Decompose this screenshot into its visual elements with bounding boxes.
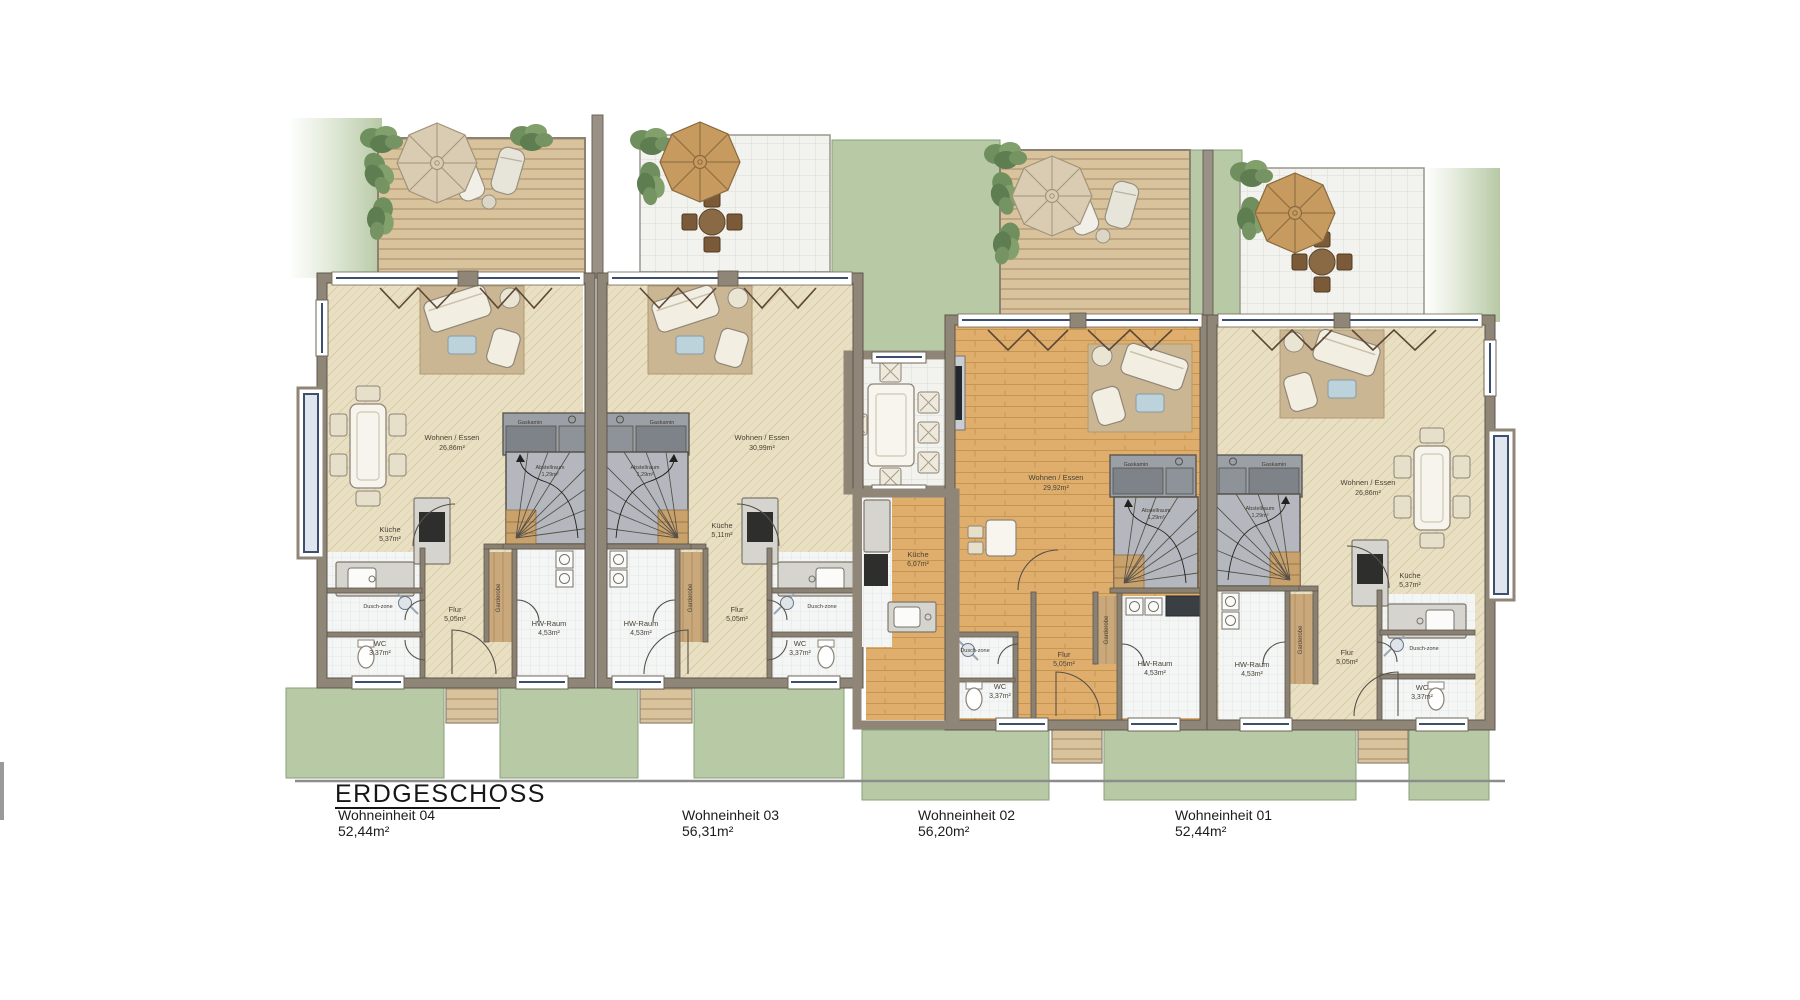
unit-02-name: Wohneinheit 02: [918, 807, 1015, 823]
room-area-u03-abstell: 1,29m²: [636, 472, 653, 478]
room-area-u03-hw: 4,53m²: [630, 630, 652, 637]
room-label-u02-kueche: Küche: [907, 550, 928, 559]
room-label-u01-garderobe: Garderobe: [1298, 625, 1304, 654]
small-table: [986, 520, 1016, 556]
room-label-u03-hw: HW-Raum: [624, 619, 659, 628]
room-label-u03-wc: WC: [794, 639, 807, 648]
room-area-u01-flur: 5,05m²: [1336, 659, 1358, 666]
room-area-u02-flur: 5,05m²: [1053, 661, 1075, 668]
room-label-u04-wc: WC: [374, 639, 387, 648]
room-label-u01-dusch: Dusch-zone: [1409, 646, 1438, 652]
terrace-unit04: [356, 123, 585, 278]
bay-window: [1488, 430, 1514, 600]
room-label-u03-flur: Flur: [731, 605, 744, 614]
room-area-u02-hw: 4,53m²: [1144, 670, 1166, 677]
room-area-u03-wohnen: 30,99m²: [749, 445, 775, 452]
room-label-u04-wohnen: Wohnen / Essen: [425, 433, 480, 442]
room-area-u01-wohnen: 26,86m²: [1355, 490, 1381, 497]
room-label-u04-gaskamin: Gaskamin: [518, 420, 543, 426]
fireplace: [603, 413, 689, 455]
room-area-u03-kueche: 5,11m²: [711, 532, 733, 539]
room-label-u02-flur: Flur: [1058, 650, 1071, 659]
room-label-u02-wc: WC: [994, 682, 1007, 691]
room-label-u01-flur: Flur: [1341, 648, 1354, 657]
bay-window: [298, 388, 324, 558]
room-label-u04-abstell: Abstellraum: [535, 465, 564, 471]
parasol-icon: [397, 123, 477, 203]
unit-03-name: Wohneinheit 03: [682, 807, 779, 823]
room-label-u03-abstell: Abstellraum: [630, 465, 659, 471]
room-label-u03-wohnen: Wohnen / Essen: [735, 433, 790, 442]
room-area-u01-hw: 4,53m²: [1241, 671, 1263, 678]
building-unit04: Wohnen / Essen 26,86m² Küche 5,37m² Flur…: [298, 271, 595, 689]
room-area-u03-flur: 5,05m²: [726, 616, 748, 623]
floor-plan-page: Wohnen / Essen 26,86m² Küche 5,37m² Flur…: [0, 0, 1800, 1000]
sofa-group: [1280, 328, 1384, 418]
room-label-u02-wohnen: Wohnen / Essen: [1029, 473, 1084, 482]
room-area-u02-kueche: 6,07m²: [907, 561, 929, 568]
room-area-u02-wc: 3,37m²: [989, 693, 1011, 700]
room-label-u04-kueche: Küche: [379, 525, 400, 534]
divider-fence-02-01: [1203, 150, 1213, 322]
room-label-u02-garderobe: Garderobe: [1104, 615, 1110, 644]
terrace-unit02: [984, 142, 1190, 322]
room-area-u04-wohnen: 26,86m²: [439, 445, 465, 452]
building-unit01: Wohnen / Essen 26,86m² Küche 5,37m² Flur…: [1207, 313, 1514, 731]
room-area-u01-wc: 3,37m²: [1411, 694, 1433, 701]
terrace-unit01: [1230, 160, 1424, 322]
divider-fence-04-03: [592, 115, 603, 278]
unit-01-name: Wohneinheit 01: [1175, 807, 1272, 823]
room-label-u01-gaskamin: Gaskamin: [1262, 462, 1287, 468]
room-area-u03-wc: 3,37m²: [789, 650, 811, 657]
room-area-u02-wohnen: 29,92m²: [1043, 485, 1069, 492]
edge-artifact: [0, 762, 4, 820]
room-label-u04-hw: HW-Raum: [532, 619, 567, 628]
room-label-u04-dusch: Dusch-zone: [363, 604, 392, 610]
room-label-u03-dusch: Dusch-zone: [807, 604, 836, 610]
room-label-u01-wohnen: Wohnen / Essen: [1341, 478, 1396, 487]
room-label-u02-dusch: Dusch-zone: [960, 648, 989, 654]
sofa-group: [1088, 342, 1192, 432]
room-label-u04-garderobe: Garderobe: [496, 583, 502, 612]
room-area-u02-abstell: 1,29m²: [1147, 515, 1164, 521]
room-label-u03-kueche: Küche: [711, 521, 732, 530]
room-area-u04-wc: 3,37m²: [369, 650, 391, 657]
room-area-u01-abstell: 1,29m²: [1251, 513, 1268, 519]
unit-04-name: Wohneinheit 04: [338, 807, 435, 823]
room-label-u01-hw: HW-Raum: [1235, 660, 1270, 669]
parasol-icon: [660, 122, 740, 202]
room-area-u04-abstell: 1,29m²: [541, 472, 558, 478]
parasol-icon: [1012, 156, 1092, 236]
room-label-u01-abstell: Abstellraum: [1245, 506, 1274, 512]
unit-03-area: 56,31m²: [682, 823, 734, 839]
room-label-u04-flur: Flur: [449, 605, 462, 614]
room-label-u03-garderobe: Garderobe: [688, 583, 694, 612]
fireplace: [503, 413, 589, 455]
lawn-right: [1424, 168, 1500, 322]
room-label-u01-wc: WC: [1416, 683, 1429, 692]
sofa-group: [648, 284, 752, 374]
terrace-unit03: [630, 122, 830, 272]
floor-title: ERDGESCHOSS: [335, 780, 546, 808]
room-area-u04-flur: 5,05m²: [444, 616, 466, 623]
unit-04-area: 52,44m²: [338, 823, 390, 839]
unit-02-area: 56,20m²: [918, 823, 970, 839]
room-area-u04-kueche: 5,37m²: [379, 536, 401, 543]
room-label-u02-abstell: Abstellraum: [1141, 508, 1170, 514]
room-area-u01-kueche: 5,37m²: [1399, 582, 1421, 589]
room-label-u02-hw: HW-Raum: [1138, 659, 1173, 668]
fridge: [864, 554, 888, 586]
room-label-u01-kueche: Küche: [1399, 571, 1420, 580]
room-label-u03-gaskamin: Gaskamin: [650, 420, 675, 426]
unit-01-area: 52,44m²: [1175, 823, 1227, 839]
fireplace: [1216, 455, 1302, 497]
room-area-u04-hw: 4,53m²: [538, 630, 560, 637]
cooktop: [419, 512, 445, 542]
room-label-u02-gaskamin: Gaskamin: [1124, 462, 1149, 468]
floor-plan-drawing: Wohnen / Essen 26,86m² Küche 5,37m² Flur…: [0, 0, 1800, 1000]
parasol-icon: [1255, 173, 1335, 253]
tv: [955, 366, 962, 420]
